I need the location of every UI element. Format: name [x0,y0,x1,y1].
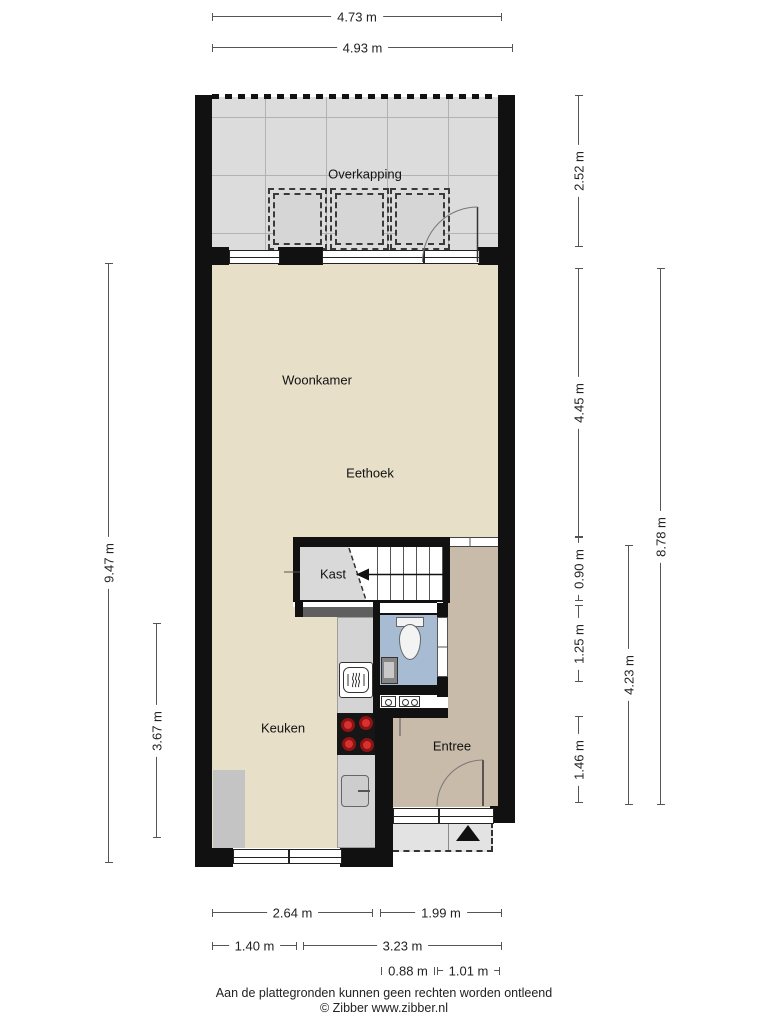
dimension-top-1: 4.73 m [212,16,502,17]
room-label-keuken: Keuken [261,721,305,736]
dimension-label: 9.47 m [100,537,119,589]
dimension-bottom-4: 3.23 m [303,945,502,946]
dimension-right-3: 0.90 m [578,537,579,601]
footer-disclaimer: Aan de plattegronden kunnen geen rechten… [0,986,768,1000]
room-label-eethoek: Eethoek [346,466,394,481]
dimension-right-5: 1.46 m [578,716,579,803]
dimension-label: 4.45 m [570,377,589,429]
stair-direction-arrow-icon [356,569,369,581]
dimension-label: 4.23 m [620,649,639,701]
dimension-bottom-3: 1.40 m [212,945,297,946]
room-label-kast: Kast [320,567,346,582]
dimension-label: 4.93 m [337,41,389,56]
room-label-overkapping: Overkapping [328,167,402,182]
dimension-label: 1.25 m [570,618,589,670]
dimension-label: 3.67 m [148,705,167,757]
front-door-swing-arc-icon [437,760,483,806]
dimension-label: 0.90 m [570,543,589,595]
room-label-entree: Entree [433,739,471,754]
dimension-right-6: 4.23 m [628,545,629,805]
dimension-label: 8.78 m [652,511,671,563]
dimension-top-2: 4.93 m [212,47,513,48]
door-swing-arc-icon [423,207,478,262]
dimension-right-7: 8.78 m [660,268,661,805]
dimension-label: 1.46 m [570,734,589,786]
dimension-label: 0.88 m [382,964,434,979]
dimension-label: 3.23 m [377,939,429,954]
dimension-bottom-5: 0.88 m [381,970,435,971]
dimension-label: 1.99 m [415,906,467,921]
dimension-label: 1.01 m [443,964,495,979]
footer-copyright: © Zibber www.zibber.nl [0,1001,768,1015]
dimension-left-2: 3.67 m [156,623,157,838]
floorplan-page: Overkapping Woonkamer Eethoek Kast Keuke… [0,0,768,1024]
entrance-arrow-icon [456,825,480,841]
dimension-left-1: 9.47 m [108,263,109,863]
dimension-label: 2.52 m [570,145,589,197]
dimension-bottom-1: 2.64 m [212,912,373,913]
dimension-bottom-6: 1.01 m [437,970,500,971]
dimension-bottom-2: 1.99 m [380,912,502,913]
dimension-label: 4.73 m [331,10,383,25]
dimension-right-4: 1.25 m [578,605,579,682]
room-label-woonkamer: Woonkamer [282,373,352,388]
dimension-right-1: 2.52 m [578,95,579,247]
dimension-right-2: 4.45 m [578,268,579,537]
dimension-label: 1.40 m [229,939,281,954]
dimension-label: 2.64 m [267,906,319,921]
